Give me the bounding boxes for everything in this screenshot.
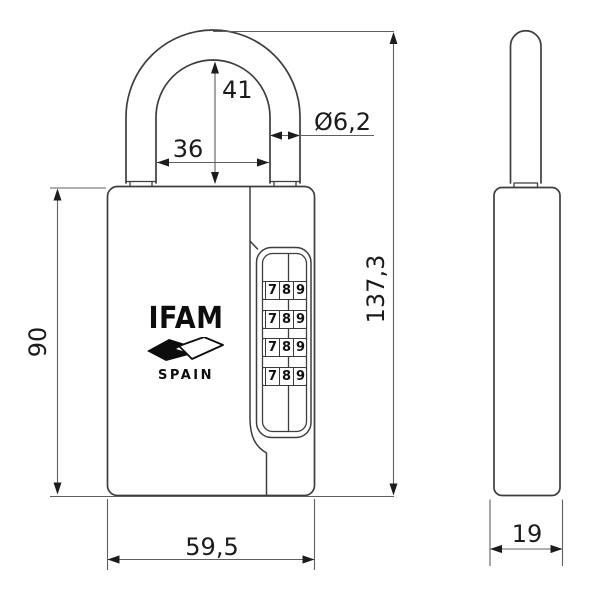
wheel-digit: 7 [265, 311, 279, 328]
brand-logo-mark-icon [147, 337, 225, 363]
wheel-digit: 8 [279, 339, 293, 356]
front-shackle-outer [126, 30, 300, 183]
wheel-digit: 8 [279, 311, 293, 328]
front-shackle-inner [156, 60, 270, 183]
dim-label-shackle-inner-height: 41 [222, 78, 253, 102]
wheel-digit: 7 [265, 339, 279, 356]
dimension-arrowheads [54, 32, 563, 564]
combination-wheel-row: 7 8 9 [262, 338, 307, 357]
brand-logo: IFAM SPAIN [130, 304, 242, 382]
dim-label-shackle-diameter: Ø6,2 [314, 110, 371, 134]
wheel-digit: 8 [279, 282, 293, 299]
wheel-digit: 9 [293, 311, 307, 328]
combination-wheel-row: 7 8 9 [262, 367, 307, 386]
dim-label-total-height: 137,3 [364, 244, 388, 334]
combination-wheel-row: 7 8 9 [262, 310, 307, 329]
dim-label-body-depth: 19 [507, 522, 547, 546]
wheel-digit: 9 [293, 368, 307, 385]
side-shackle-rod [511, 31, 542, 183]
wheel-digit: 9 [293, 282, 307, 299]
wheel-digit: 9 [293, 339, 307, 356]
side-body-outline [494, 188, 560, 496]
padlock-line-art [0, 0, 600, 600]
brand-name: IFAM [136, 304, 237, 334]
dim-label-shackle-inner-width: 36 [172, 137, 204, 161]
dim-label-body-width: 59,5 [177, 535, 247, 559]
drawing-canvas: 41 36 Ø6,2 137,3 90 59,5 19 7 8 9 7 8 9 … [0, 0, 600, 600]
wheel-digit: 7 [265, 282, 279, 299]
wheel-digit: 7 [265, 368, 279, 385]
combination-wheel-row: 7 8 9 [262, 281, 307, 300]
wheel-digit: 8 [279, 368, 293, 385]
brand-country: SPAIN [130, 369, 242, 382]
dim-label-body-height: 90 [26, 321, 50, 363]
